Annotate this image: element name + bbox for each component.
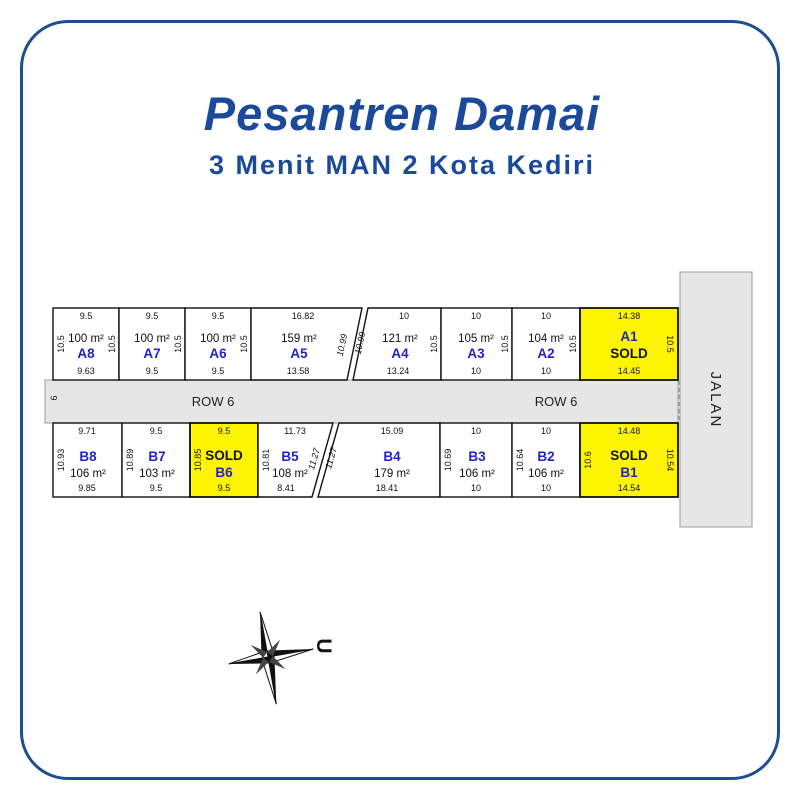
plot-b1-sold-badge: SOLD [610, 448, 648, 463]
plot-b2-dim-top: 10 [541, 426, 551, 436]
plot-b6-dim-top: 9.5 [218, 426, 231, 436]
plot-b4-dim-top: 15.09 [381, 426, 404, 436]
plot-a8-dim-bottom: 9.63 [77, 366, 95, 376]
plot-b2-label: B2 [537, 449, 554, 464]
plot-a4-area: 121 m² [382, 333, 418, 345]
plot-a4-dim-right: 10.5 [429, 335, 439, 353]
plot-a3-area: 105 m² [458, 333, 494, 345]
plot-a6-dim-bottom: 9.5 [212, 366, 225, 376]
plot-b3-dim-bottom: 10 [471, 483, 481, 493]
plot-b4-dim-bottom: 18.41 [376, 483, 399, 493]
plot-b5-label: B5 [281, 449, 299, 464]
plot-a7-dim-bottom: 9.5 [146, 366, 159, 376]
plot-a6-dim-top: 9.5 [212, 311, 225, 321]
plot-b6-dim-left: 10.85 [193, 449, 203, 472]
plot-b1-label: B1 [620, 465, 638, 480]
plot-b3-area: 106 m² [459, 468, 495, 480]
plot-a1-sold: 14.38 14.45 10.5 A1 SOLD [580, 308, 678, 380]
plot-b5-area: 108 m² [272, 468, 308, 480]
compass-rose [221, 604, 322, 712]
plot-b6-label: B6 [215, 465, 233, 480]
plot-a4: 10 13.24 10.99 10.5 121 m² A4 [353, 308, 441, 380]
plot-a5-dim-bottom: 13.58 [287, 366, 310, 376]
plot-a6: 9.5 9.5 10.5 100 m² A6 [185, 308, 251, 380]
plot-b7-dim-bottom: 9.5 [150, 483, 163, 493]
plot-a8: 9.5 9.63 10.5 10.5 100 m² A8 [53, 308, 119, 380]
plot-a3-dim-right: 10.5 [500, 335, 510, 353]
plot-a3-label: A3 [467, 346, 485, 361]
plot-a5-dim-top: 16.82 [292, 311, 315, 321]
plot-b7-area: 103 m² [139, 468, 175, 480]
plot-b8-label: B8 [79, 449, 97, 464]
plot-b1-dim-left: 10.6 [583, 451, 593, 469]
plot-a8-area: 100 m² [68, 333, 104, 345]
plot-b7: 9.5 9.5 10.89 B7 103 m² [122, 423, 190, 497]
plot-a4-label: A4 [391, 346, 409, 361]
plot-a8-dim-left: 10.5 [56, 335, 66, 353]
plot-b8-dim-top: 9.71 [78, 426, 96, 436]
plot-a7: 9.5 9.5 10.5 100 m² A7 [119, 308, 185, 380]
plot-a6-label: A6 [209, 346, 227, 361]
row6-road-label-left: ROW 6 [192, 394, 235, 409]
plot-b8-dim-bottom: 9.85 [78, 483, 96, 493]
plot-a8-dim-right: 10.5 [107, 335, 117, 353]
compass-north-letter: U [312, 638, 335, 653]
plot-a2-label: A2 [537, 346, 554, 361]
plot-b2: 10 10 10.64 B2 106 m² [512, 423, 580, 497]
plot-a1-sold-badge: SOLD [610, 346, 648, 361]
plot-a2: 10 10 10.5 104 m² A2 [512, 308, 580, 380]
flyer-canvas: Pesantren Damai 3 Menit MAN 2 Kota Kedir… [0, 0, 804, 804]
plot-b3-label: B3 [468, 449, 486, 464]
plot-b7-dim-top: 9.5 [150, 426, 163, 436]
plot-a5-label: A5 [290, 346, 308, 361]
plot-b5-dim-bottom: 8.41 [277, 483, 295, 493]
plot-b5-dim-left: 10.81 [261, 449, 271, 472]
plot-a3: 10 10 10.5 105 m² A3 [441, 308, 512, 380]
plot-b7-label: B7 [148, 449, 165, 464]
plot-b2-area: 106 m² [528, 468, 564, 480]
plot-b8: 9.71 9.85 10.93 B8 106 m² [53, 423, 122, 497]
plot-a7-area: 100 m² [134, 333, 170, 345]
plot-a3-dim-top: 10 [471, 311, 481, 321]
plot-b1-sold: 14.48 14.54 10.6 10.54 SOLD B1 [580, 423, 678, 497]
plot-b7-dim-left: 10.89 [125, 449, 135, 472]
plot-b8-dim-left: 10.93 [56, 449, 66, 472]
row6-road-width-dim: 6 [49, 395, 59, 400]
plot-b2-dim-bottom: 10 [541, 483, 551, 493]
plot-b1-dim-top: 14.48 [618, 426, 641, 436]
plot-a1-dim-right: 10.5 [665, 335, 675, 353]
plot-a6-area: 100 m² [200, 333, 236, 345]
plot-a7-dim-right: 10.5 [173, 335, 183, 353]
plot-a4-dim-top: 10 [399, 311, 409, 321]
plot-b4-area: 179 m² [374, 468, 410, 480]
plot-b4: 15.09 18.41 11.27 B4 179 m² [318, 423, 440, 497]
plot-b6-dim-bottom: 9.5 [218, 483, 231, 493]
plot-a1-label: A1 [620, 329, 638, 344]
plot-b6-sold: 9.5 9.5 10.85 SOLD B6 [190, 423, 258, 497]
plot-a2-area: 104 m² [528, 333, 564, 345]
plot-b3-dim-left: 10.69 [443, 449, 453, 472]
plot-a8-label: A8 [77, 346, 95, 361]
plot-b1-dim-right: 10.54 [665, 449, 675, 472]
plot-a2-dim-top: 10 [541, 311, 551, 321]
jalan-road-label: JALAN [707, 372, 724, 429]
plot-a7-dim-top: 9.5 [146, 311, 159, 321]
side-road-jalan: JALAN [680, 272, 752, 527]
plot-a1-dim-top: 14.38 [618, 311, 641, 321]
plot-a6-dim-right: 10.5 [239, 335, 249, 353]
row6-road: ROW 6 ROW 6 6 [45, 380, 679, 423]
plot-b3-dim-top: 10 [471, 426, 481, 436]
plot-b4-label: B4 [383, 449, 401, 464]
site-plan: JALAN ROW 6 ROW 6 6 9.5 9.63 10.5 10.5 1… [0, 0, 804, 804]
plot-a4-dim-bottom: 13.24 [387, 366, 410, 376]
plot-a2-dim-right: 10.5 [568, 335, 578, 353]
plot-a8-dim-top: 9.5 [80, 311, 93, 321]
plot-b3: 10 10 10.69 B3 106 m² [440, 423, 512, 497]
plot-a7-label: A7 [143, 346, 160, 361]
plot-a5-area: 159 m² [281, 333, 317, 345]
row6-road-surface [45, 380, 678, 423]
plot-a1-dim-bottom: 14.45 [618, 366, 641, 376]
plot-b5-dim-top: 11.73 [284, 426, 306, 436]
plot-a3-dim-bottom: 10 [471, 366, 481, 376]
plot-a5: 16.82 13.58 10.99 159 m² A5 [251, 308, 362, 380]
plot-a2-dim-bottom: 10 [541, 366, 551, 376]
plot-b6-sold-badge: SOLD [205, 448, 243, 463]
plot-b1-dim-bottom: 14.54 [618, 483, 641, 493]
plot-b2-dim-left: 10.64 [515, 449, 525, 472]
plot-b8-area: 106 m² [70, 468, 106, 480]
row6-road-label-right: ROW 6 [535, 394, 578, 409]
